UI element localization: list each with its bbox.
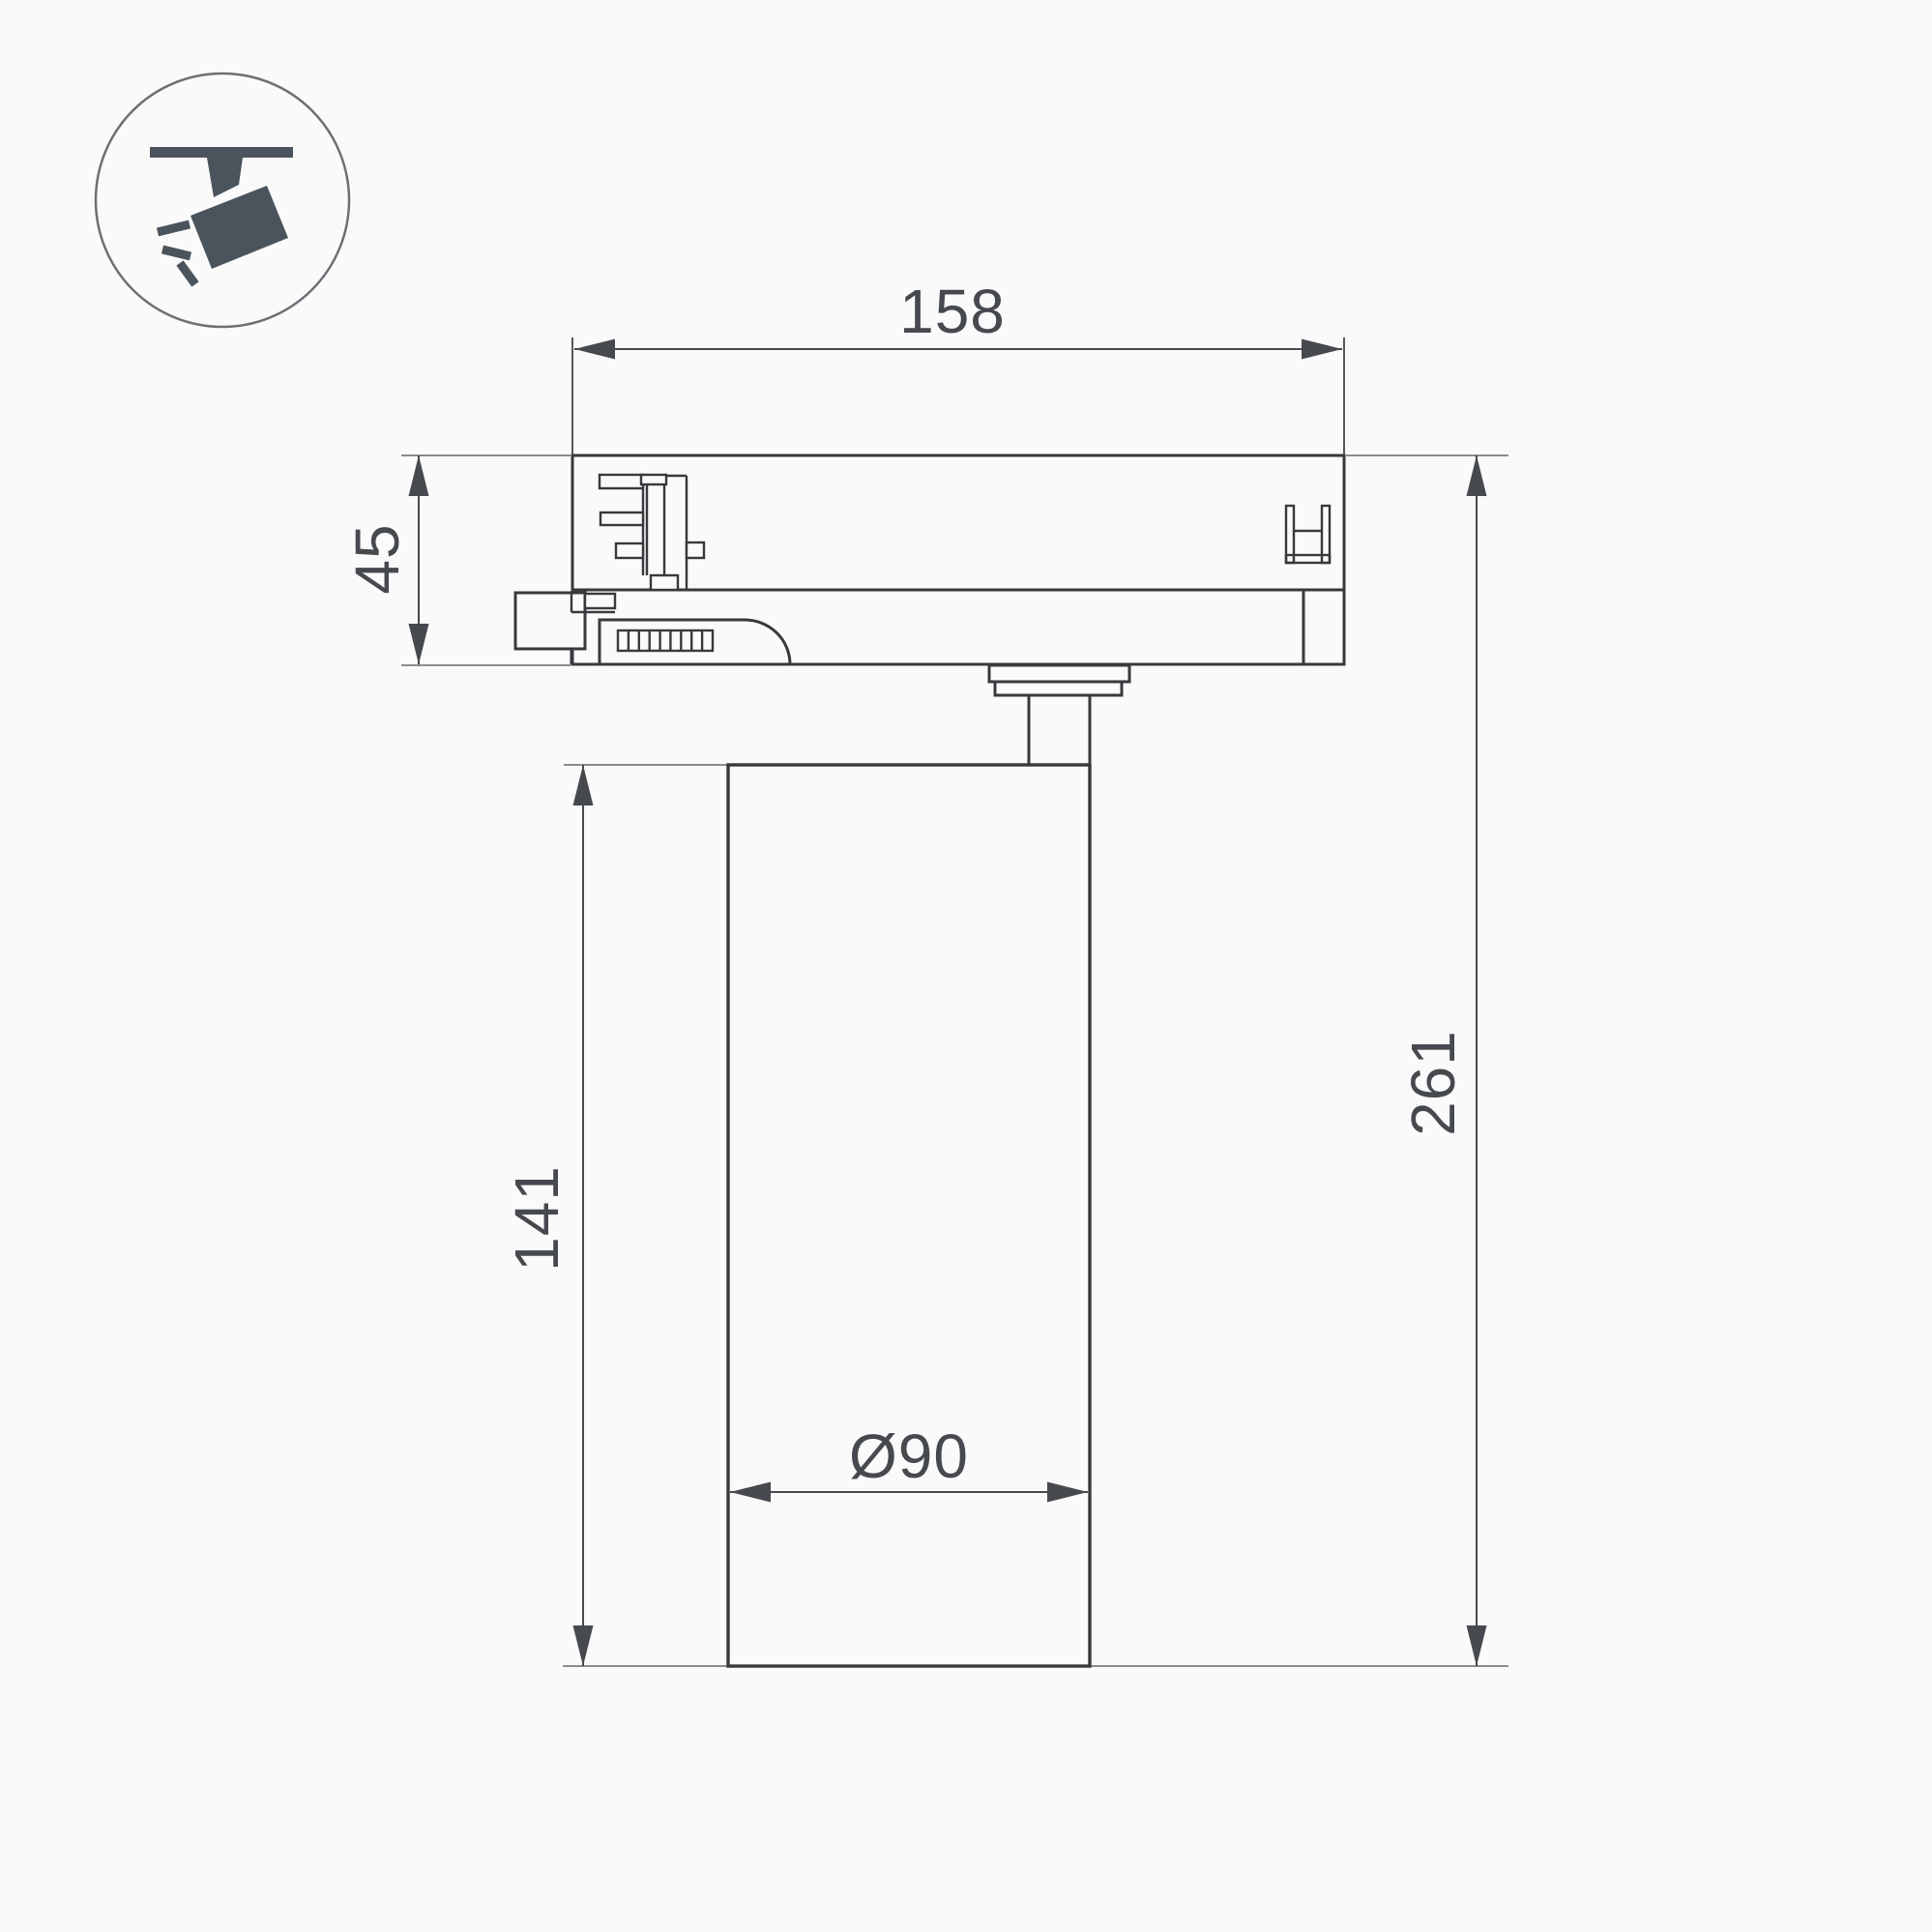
dim-label-158: 158 <box>899 277 1006 346</box>
arrowhead-left <box>574 339 615 360</box>
dim-label-261: 261 <box>1398 1030 1468 1136</box>
latch-square <box>515 593 585 649</box>
arrowhead-down <box>1467 1625 1487 1666</box>
icon-circle <box>96 73 349 327</box>
release-lever <box>600 620 790 664</box>
dimension-45: 45 <box>342 455 429 664</box>
clip-bottom <box>1286 555 1330 563</box>
dimension-158: 158 <box>574 277 1342 360</box>
mount-pedestal <box>989 665 1129 765</box>
arrowhead-right <box>1302 339 1342 360</box>
contact-tab-right <box>687 542 704 558</box>
contact-pin-cap <box>641 475 666 484</box>
lamp-cylinder <box>728 765 1090 1666</box>
dimension-141: 141 <box>502 765 594 1666</box>
track-adapter <box>515 455 1344 765</box>
dimension-261: 261 <box>1398 455 1487 1666</box>
track-spotlight-icon <box>96 73 349 327</box>
contact-prong-3 <box>616 543 643 558</box>
pedestal-step-2 <box>995 682 1122 695</box>
dim-label-45: 45 <box>342 523 412 594</box>
contact-prong-1 <box>600 475 643 488</box>
ground-clip <box>1286 506 1330 563</box>
icon-track-bar <box>150 147 293 158</box>
arrowhead-up <box>573 765 594 805</box>
technical-drawing: 158 45 141 261 <box>0 0 1932 1932</box>
dim-label-141: 141 <box>502 1165 571 1272</box>
dim-label-diameter: Ø90 <box>849 1421 969 1491</box>
contact-foot <box>651 575 678 590</box>
arrowhead-up <box>409 455 429 496</box>
arrowhead-up <box>1467 455 1487 496</box>
contact-assembly <box>600 475 704 590</box>
latch-tab <box>585 594 615 608</box>
pedestal-step-1 <box>989 665 1129 682</box>
arrowhead-down <box>573 1625 594 1666</box>
arrowhead-down <box>409 624 429 664</box>
contact-prong-2 <box>600 512 643 525</box>
